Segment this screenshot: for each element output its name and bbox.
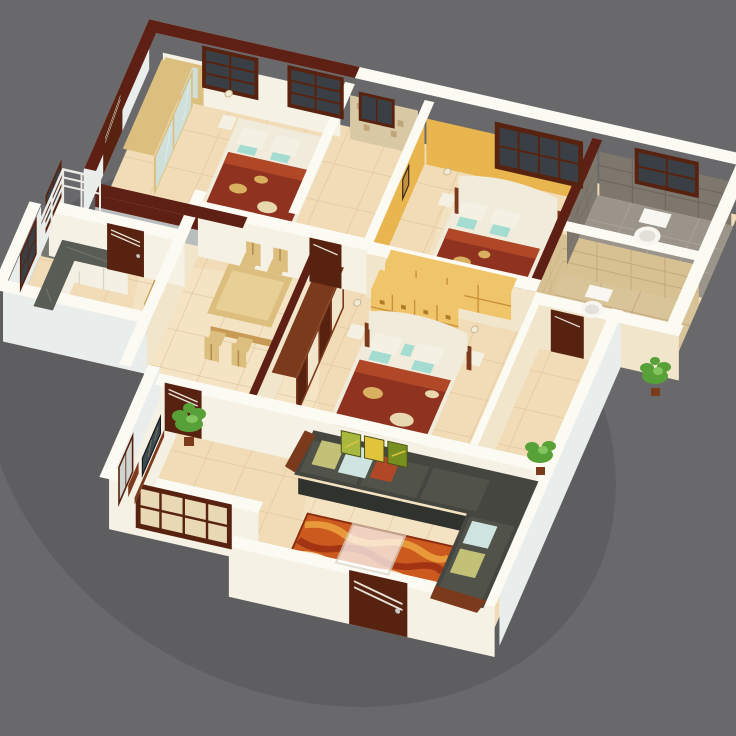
lobby-door bbox=[309, 238, 341, 289]
floorplan-render bbox=[0, 0, 736, 736]
lobby-window bbox=[360, 93, 393, 126]
bathroom-door bbox=[551, 309, 584, 358]
kitchen-door bbox=[107, 223, 144, 277]
floorplan-canvas bbox=[0, 0, 736, 736]
